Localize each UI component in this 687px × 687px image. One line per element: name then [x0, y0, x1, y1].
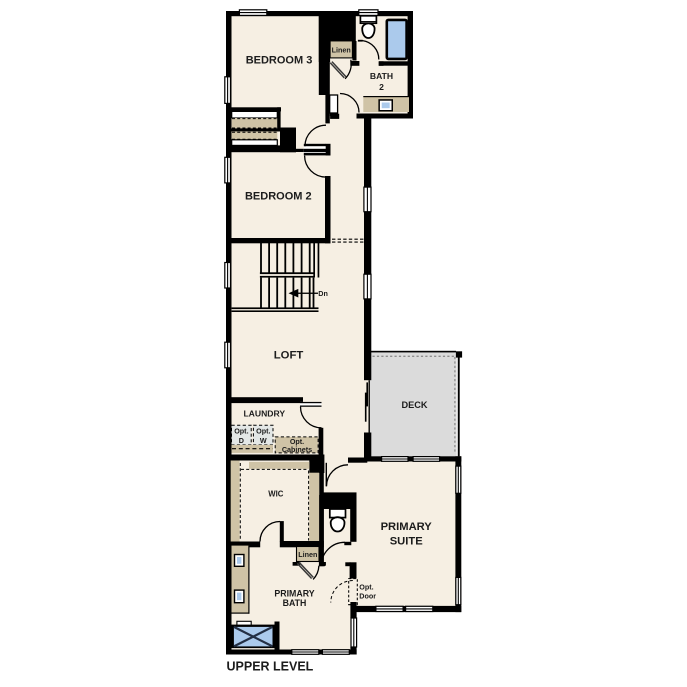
svg-text:LOFT: LOFT — [274, 349, 304, 361]
svg-text:UPPER LEVEL: UPPER LEVEL — [227, 660, 314, 674]
svg-text:BATH: BATH — [283, 598, 307, 608]
svg-text:D: D — [239, 436, 244, 445]
svg-text:Linen: Linen — [332, 45, 351, 54]
svg-text:W: W — [260, 436, 267, 445]
svg-text:Opt.: Opt. — [234, 426, 248, 435]
svg-text:Dn: Dn — [318, 289, 328, 298]
svg-text:DECK: DECK — [401, 400, 427, 410]
svg-text:SUITE: SUITE — [390, 536, 423, 548]
svg-text:Linen: Linen — [298, 550, 317, 559]
svg-text:PRIMARY: PRIMARY — [381, 521, 433, 533]
svg-text:Door: Door — [359, 591, 376, 600]
svg-text:LAUNDRY: LAUNDRY — [243, 409, 285, 419]
svg-text:Opt.: Opt. — [359, 582, 373, 591]
svg-text:2: 2 — [379, 82, 384, 92]
svg-text:BATH: BATH — [370, 71, 393, 81]
svg-text:BEDROOM 3: BEDROOM 3 — [246, 55, 313, 67]
svg-text:BEDROOM 2: BEDROOM 2 — [245, 190, 312, 202]
svg-text:WIC: WIC — [268, 490, 284, 499]
svg-text:Opt.: Opt. — [256, 426, 270, 435]
svg-text:Cabinets: Cabinets — [282, 445, 312, 454]
